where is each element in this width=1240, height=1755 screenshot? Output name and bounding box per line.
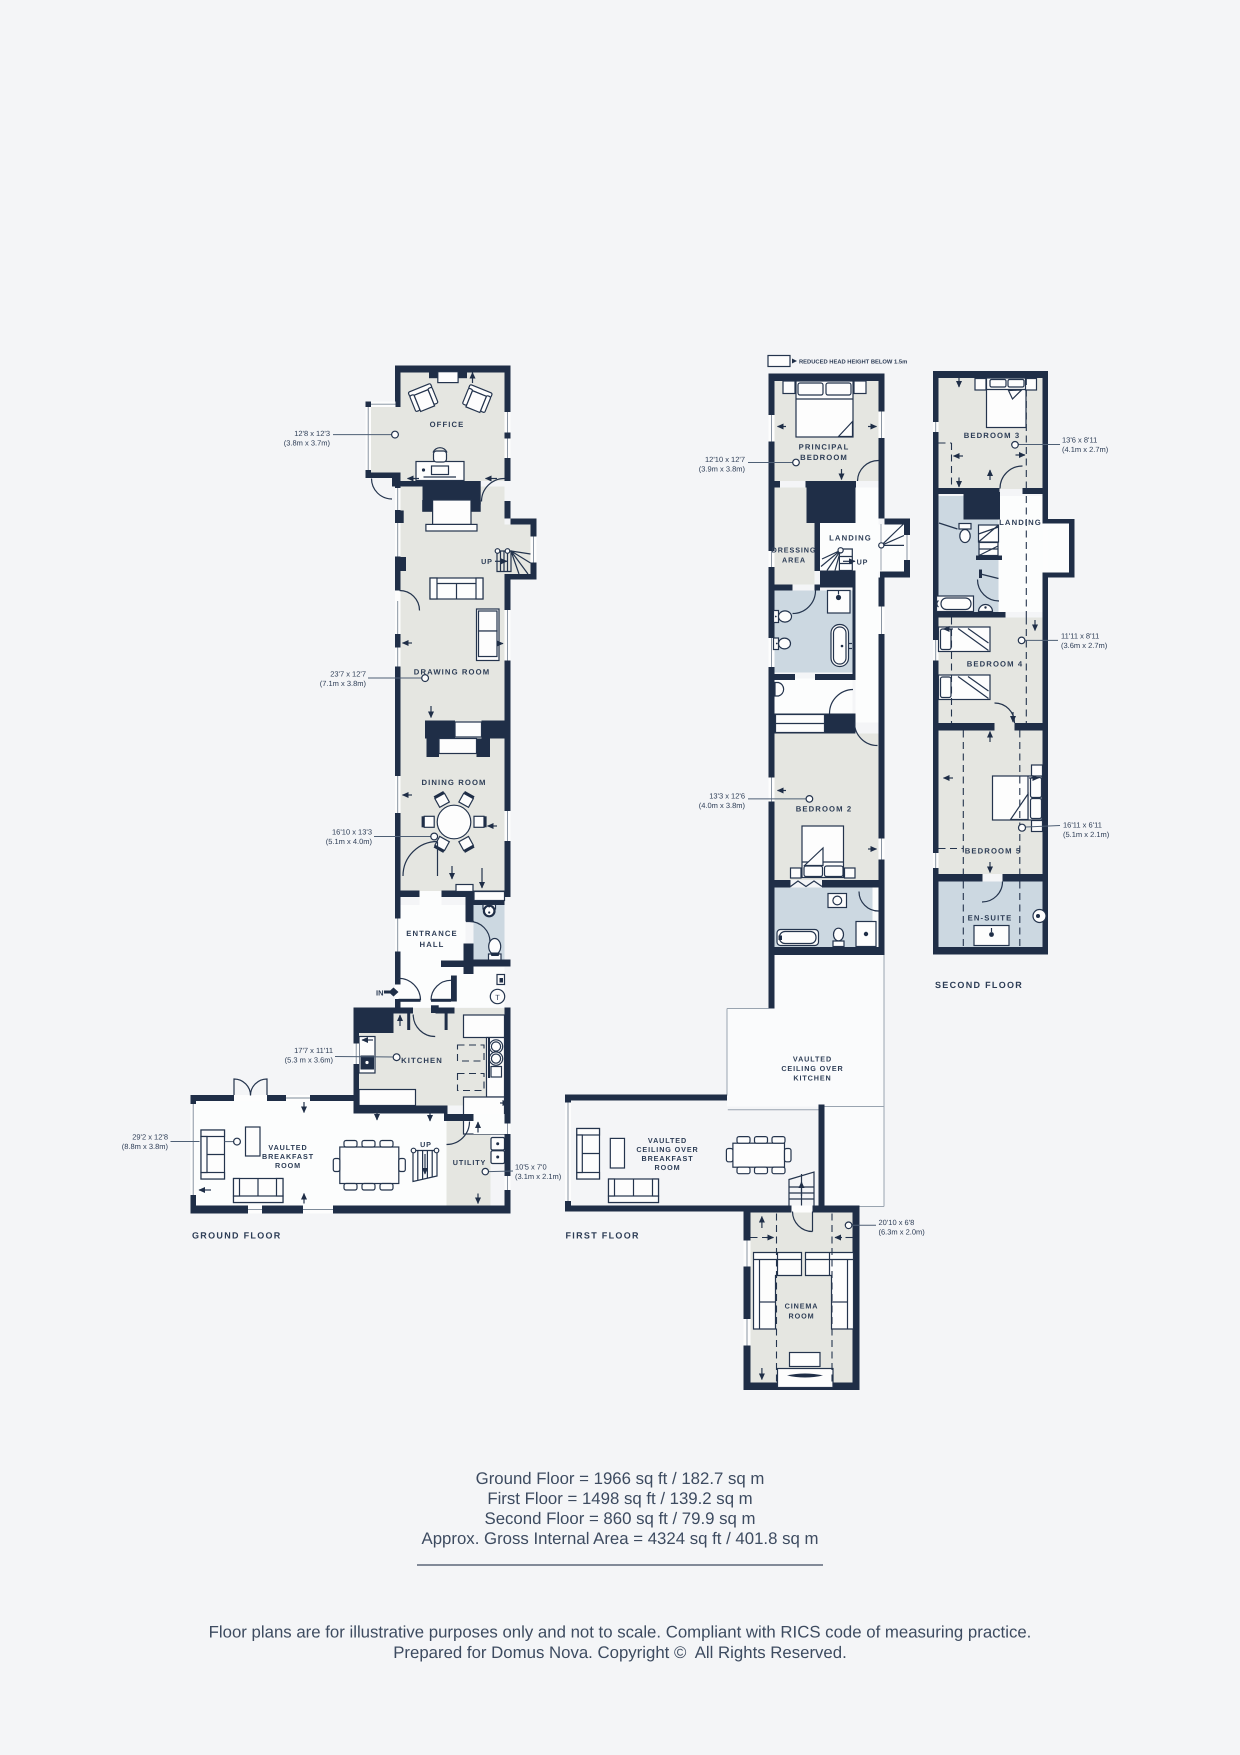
svg-text:(7.1m x 3.8m): (7.1m x 3.8m) xyxy=(320,679,367,688)
svg-text:17'7 x 11'11: 17'7 x 11'11 xyxy=(294,1046,333,1055)
svg-text:OFFICE: OFFICE xyxy=(430,420,465,429)
svg-text:BEDROOM 3: BEDROOM 3 xyxy=(964,431,1020,440)
svg-text:(8.8m x 3.8m): (8.8m x 3.8m) xyxy=(122,1142,169,1151)
svg-text:(3.8m x 3.7m): (3.8m x 3.7m) xyxy=(284,439,331,448)
svg-text:(5.1m x 4.0m): (5.1m x 4.0m) xyxy=(326,837,373,846)
svg-text:Floor plans are for illustrati: Floor plans are for illustrative purpose… xyxy=(209,1623,1032,1642)
svg-text:Ground Floor = 1966 sq ft / 18: Ground Floor = 1966 sq ft / 182.7 sq m xyxy=(476,1469,765,1488)
svg-text:Approx. Gross Internal Area =: Approx. Gross Internal Area = 4324 sq ft… xyxy=(422,1529,819,1548)
svg-text:KITCHEN: KITCHEN xyxy=(793,1074,831,1083)
svg-text:Second Floor = 860 sq ft / 79.: Second Floor = 860 sq ft / 79.9 sq m xyxy=(485,1509,756,1528)
svg-text:REDUCED HEAD HEIGHT BELOW 1.5m: REDUCED HEAD HEIGHT BELOW 1.5m xyxy=(799,359,907,366)
svg-text:LANDING: LANDING xyxy=(999,518,1042,527)
svg-text:CINEMA: CINEMA xyxy=(785,1302,819,1311)
svg-text:BEDROOM: BEDROOM xyxy=(800,453,848,462)
svg-text:First Floor = 1498 sq ft / 139: First Floor = 1498 sq ft / 139.2 sq m xyxy=(487,1489,752,1508)
svg-text:FIRST FLOOR: FIRST FLOOR xyxy=(566,1231,640,1241)
svg-text:(4.1m x 2.7m): (4.1m x 2.7m) xyxy=(1062,445,1109,454)
svg-text:BREAKFAST: BREAKFAST xyxy=(262,1152,314,1161)
svg-text:GROUND FLOOR: GROUND FLOOR xyxy=(192,1231,282,1241)
svg-text:EN-SUITE: EN-SUITE xyxy=(968,914,1013,923)
svg-text:IN: IN xyxy=(376,989,384,998)
svg-text:20'10 x 6'8: 20'10 x 6'8 xyxy=(879,1218,915,1227)
svg-text:UP: UP xyxy=(857,558,869,567)
svg-text:(5.1m x 2.1m): (5.1m x 2.1m) xyxy=(1063,830,1110,839)
svg-text:AREA: AREA xyxy=(782,556,806,565)
svg-text:(5.3 m x 3.6m): (5.3 m x 3.6m) xyxy=(285,1056,334,1065)
svg-text:PRINCIPAL: PRINCIPAL xyxy=(799,443,850,452)
svg-text:BEDROOM 4: BEDROOM 4 xyxy=(967,660,1023,669)
svg-text:DINING ROOM: DINING ROOM xyxy=(421,778,486,787)
svg-text:(3.6m x 2.7m): (3.6m x 2.7m) xyxy=(1061,641,1108,650)
svg-text:UP: UP xyxy=(481,557,493,566)
svg-text:13'6 x 8'11: 13'6 x 8'11 xyxy=(1062,436,1097,445)
svg-text:SECOND FLOOR: SECOND FLOOR xyxy=(935,980,1023,990)
svg-text:BEDROOM 2: BEDROOM 2 xyxy=(796,805,852,814)
svg-text:ROOM: ROOM xyxy=(275,1161,301,1170)
svg-text:DRESSING: DRESSING xyxy=(772,546,817,555)
svg-text:UP: UP xyxy=(420,1140,432,1149)
svg-text:ROOM: ROOM xyxy=(789,1312,815,1321)
svg-text:CEILING OVER: CEILING OVER xyxy=(636,1145,698,1154)
svg-text:10'5 x 7'0: 10'5 x 7'0 xyxy=(515,1163,547,1172)
svg-text:BEDROOM 5: BEDROOM 5 xyxy=(965,847,1021,856)
svg-text:23'7 x 12'7: 23'7 x 12'7 xyxy=(330,670,366,679)
svg-text:VAULTED: VAULTED xyxy=(268,1143,307,1152)
svg-text:12'10 x 12'7: 12'10 x 12'7 xyxy=(705,455,745,464)
svg-text:16'10 x 13'3: 16'10 x 13'3 xyxy=(332,828,372,837)
svg-text:13'3 x 12'6: 13'3 x 12'6 xyxy=(709,792,745,801)
svg-text:12'8 x 12'3: 12'8 x 12'3 xyxy=(294,429,330,438)
svg-text:VAULTED: VAULTED xyxy=(648,1136,687,1145)
svg-text:29'2 x 12'8: 29'2 x 12'8 xyxy=(132,1133,168,1142)
svg-text:ROOM: ROOM xyxy=(655,1163,681,1172)
svg-text:11'11 x 8'11: 11'11 x 8'11 xyxy=(1061,632,1099,641)
svg-text:CEILING OVER: CEILING OVER xyxy=(781,1064,843,1073)
svg-text:16'11 x 6'11: 16'11 x 6'11 xyxy=(1063,821,1102,830)
svg-text:(6.3m x 2.0m): (6.3m x 2.0m) xyxy=(879,1228,926,1237)
svg-text:T: T xyxy=(495,993,500,1002)
svg-text:VAULTED: VAULTED xyxy=(793,1055,832,1064)
svg-text:(3.9m x 3.8m): (3.9m x 3.8m) xyxy=(699,465,746,474)
svg-text:KITCHEN: KITCHEN xyxy=(401,1056,443,1065)
svg-text:HALL: HALL xyxy=(420,940,445,949)
svg-text:LANDING: LANDING xyxy=(829,534,872,543)
svg-text:(3.1m x 2.1m): (3.1m x 2.1m) xyxy=(515,1172,562,1181)
svg-text:UTILITY: UTILITY xyxy=(453,1158,486,1167)
svg-text:ENTRANCE: ENTRANCE xyxy=(406,929,458,938)
svg-text:Prepared for Domus Nova. Copyr: Prepared for Domus Nova. Copyright © All… xyxy=(393,1643,847,1662)
svg-text:(4.0m x 3.8m): (4.0m x 3.8m) xyxy=(699,801,746,810)
svg-text:BREAKFAST: BREAKFAST xyxy=(641,1154,693,1163)
